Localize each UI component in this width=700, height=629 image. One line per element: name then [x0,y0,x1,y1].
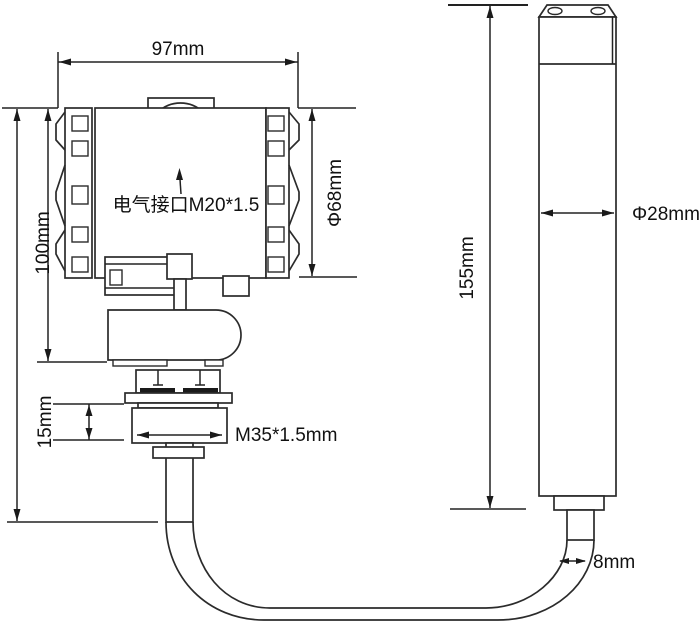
clamp-foot [205,360,223,366]
dim-label-probe-diameter: Φ28mm [632,204,700,225]
stem [174,279,186,310]
side-block [223,276,249,296]
left-rib-profile [56,112,65,150]
right-rib-profile [289,112,299,150]
label-mounting-thread-text: M35*1.5mm [235,425,337,446]
right-rib-slot [268,186,284,204]
probe-cable-gland [567,510,594,540]
arrowhead-up [14,109,21,121]
stem-top-block [167,254,192,279]
arrowhead-down [14,509,21,521]
clamp-foot [113,360,167,366]
pipe-collar [153,447,204,458]
transmitter-dimension-drawing: 97mm 100mm 15mm Φ68mm 15 [0,0,700,629]
dim-label-body-width: 97mm [152,39,205,60]
process-connection [105,254,249,522]
arrowhead-right [576,558,586,564]
left-rib-slot [72,116,88,131]
clamp-body [108,310,241,360]
left-rib-slot [72,227,88,242]
right-rib-slot [268,227,284,242]
right-rib-slot [268,141,284,156]
probe-bottom-step [554,496,604,510]
arrowhead-up [309,109,316,121]
left-rib-slot [72,186,88,204]
arrowhead-down [309,264,316,276]
dim-label-nut-height: 15mm [35,396,56,449]
arrowhead-up [86,405,93,416]
dimension-68mm: Φ68mm [299,109,357,277]
probe-top-hole [548,8,562,15]
dimension-8mm: 8mm [559,552,635,573]
right-rib-profile [289,165,299,226]
left-rib-slot [72,141,88,156]
hex-nut-m35 [132,408,227,443]
left-rib-profile [56,230,65,271]
terminal-bracket-tab [110,270,122,285]
arrowhead-left [59,59,71,66]
dimension-155mm: 155mm [448,5,528,509]
arrowhead-up [45,109,52,121]
arrowhead-down [45,349,52,361]
left-rib-profile [56,165,65,226]
flange [125,393,232,403]
probe [539,5,616,540]
arrowhead-right [285,59,297,66]
probe-top-hole [591,8,605,15]
cable-inner-edge [193,522,567,608]
arrowhead-down [487,496,494,508]
technical-drawing-canvas: 97mm 100mm 15mm Φ68mm 15 [0,0,700,629]
label-electrical-interface-text: 电气接口M20*1.5 [113,194,260,216]
probe-body [539,17,616,496]
arrowhead-down [86,428,93,439]
dimension-15mm: 15mm [35,396,124,449]
dim-label-cable-diameter: 8mm [593,552,635,573]
cable-outer-edge [166,522,594,620]
transmitter-head [56,98,299,278]
dim-label-probe-length: 155mm [457,236,478,299]
right-rib-profile [289,230,299,271]
left-rib-slot [72,257,88,272]
right-rib-slot [268,116,284,131]
dim-label-body-diameter: Φ68mm [325,159,346,227]
connection-cable [166,522,594,620]
arrowhead-up [487,6,494,18]
right-rib-slot [268,257,284,272]
dim-label-body-height: 100mm [33,211,54,274]
